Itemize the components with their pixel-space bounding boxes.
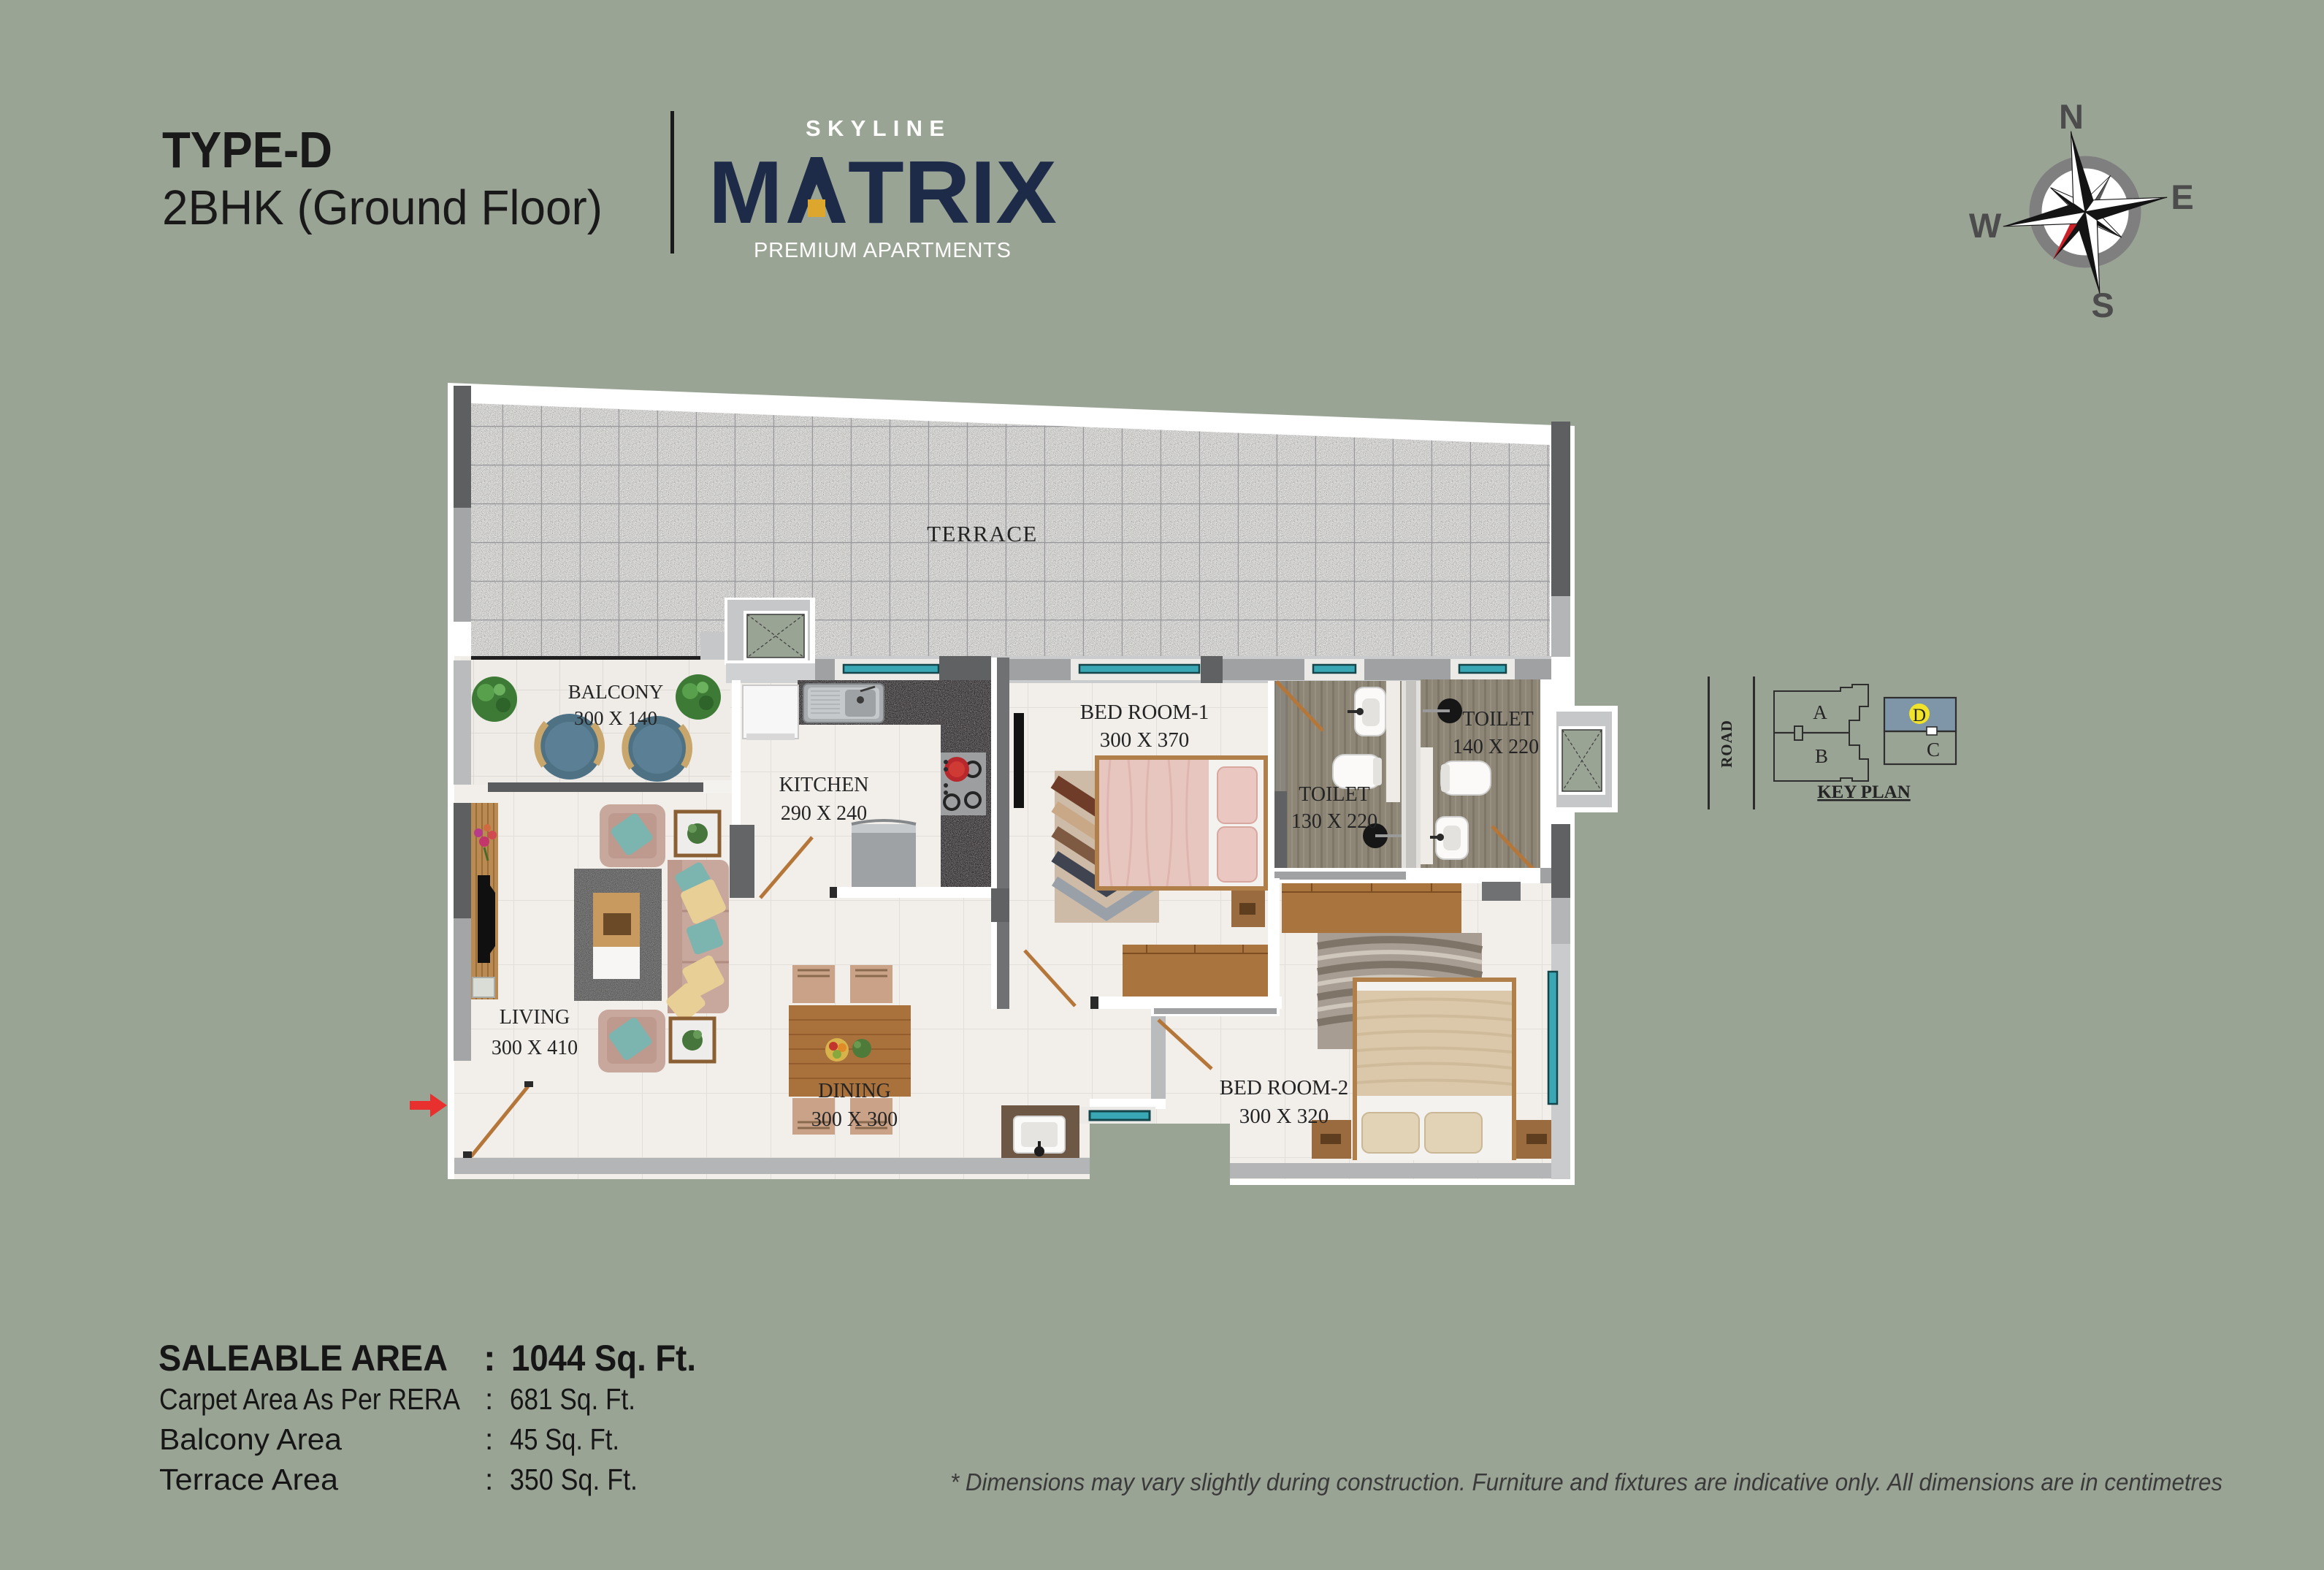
svg-text:130 X 220: 130 X 220: [1291, 810, 1377, 833]
svg-text:W: W: [1969, 206, 2002, 245]
svg-text:TYPE-D: TYPE-D: [162, 121, 332, 178]
svg-text:45 Sq. Ft.: 45 Sq. Ft.: [510, 1422, 619, 1456]
svg-text:C: C: [1927, 739, 1940, 761]
svg-text:TOILET: TOILET: [1462, 708, 1533, 731]
svg-text:KEY PLAN: KEY PLAN: [1817, 782, 1911, 802]
svg-text:140 X 220: 140 X 220: [1453, 736, 1539, 758]
svg-text:S: S: [2091, 286, 2114, 324]
svg-text:BED ROOM-2: BED ROOM-2: [1220, 1076, 1348, 1100]
svg-text:300 X 140: 300 X 140: [574, 707, 657, 729]
svg-text:300 X 370: 300 X 370: [1100, 728, 1189, 752]
svg-text:A: A: [1813, 701, 1827, 723]
svg-text:Balcony Area: Balcony Area: [159, 1422, 342, 1456]
svg-text:350 Sq. Ft.: 350 Sq. Ft.: [510, 1463, 638, 1496]
svg-text:LIVING: LIVING: [500, 1006, 570, 1029]
svg-text:B: B: [1815, 745, 1828, 767]
svg-text::: :: [485, 1422, 493, 1456]
svg-text:681 Sq. Ft.: 681 Sq. Ft.: [510, 1382, 635, 1416]
svg-text:TOILET: TOILET: [1299, 783, 1369, 806]
svg-text:TERRACE: TERRACE: [927, 521, 1038, 546]
svg-text::: :: [485, 1382, 493, 1416]
svg-text:SKYLINE: SKYLINE: [806, 115, 952, 141]
svg-text:N: N: [2059, 97, 2084, 136]
svg-text:290 X 240: 290 X 240: [781, 802, 867, 825]
svg-text:BED ROOM-1: BED ROOM-1: [1080, 701, 1209, 724]
svg-text:1044 Sq. Ft.: 1044 Sq. Ft.: [511, 1338, 696, 1379]
svg-text:TRIX: TRIX: [848, 142, 1057, 242]
svg-text:300 X 320: 300 X 320: [1239, 1105, 1329, 1128]
svg-text:Carpet Area As Per RERA: Carpet Area As Per RERA: [159, 1382, 461, 1416]
svg-text:300 X 300: 300 X 300: [811, 1108, 898, 1131]
svg-text:2BHK (Ground Floor): 2BHK (Ground Floor): [162, 180, 603, 235]
svg-text:ROAD: ROAD: [1718, 720, 1735, 768]
svg-text:300 X 410: 300 X 410: [492, 1037, 578, 1059]
svg-text:E: E: [2171, 178, 2193, 216]
svg-text:M: M: [708, 142, 783, 242]
svg-text:PREMIUM APARTMENTS: PREMIUM APARTMENTS: [754, 239, 1014, 262]
svg-text:BALCONY: BALCONY: [568, 681, 664, 703]
svg-text:* Dimensions may vary slightly: * Dimensions may vary slightly during co…: [950, 1468, 2222, 1495]
svg-text:KITCHEN: KITCHEN: [779, 774, 869, 796]
svg-text::: :: [483, 1338, 496, 1379]
svg-text::: :: [485, 1463, 493, 1496]
svg-text:D: D: [1913, 706, 1926, 725]
svg-text:SALEABLE AREA: SALEABLE AREA: [158, 1338, 448, 1379]
svg-text:DINING: DINING: [818, 1080, 891, 1102]
svg-text:Terrace Area: Terrace Area: [159, 1463, 338, 1496]
